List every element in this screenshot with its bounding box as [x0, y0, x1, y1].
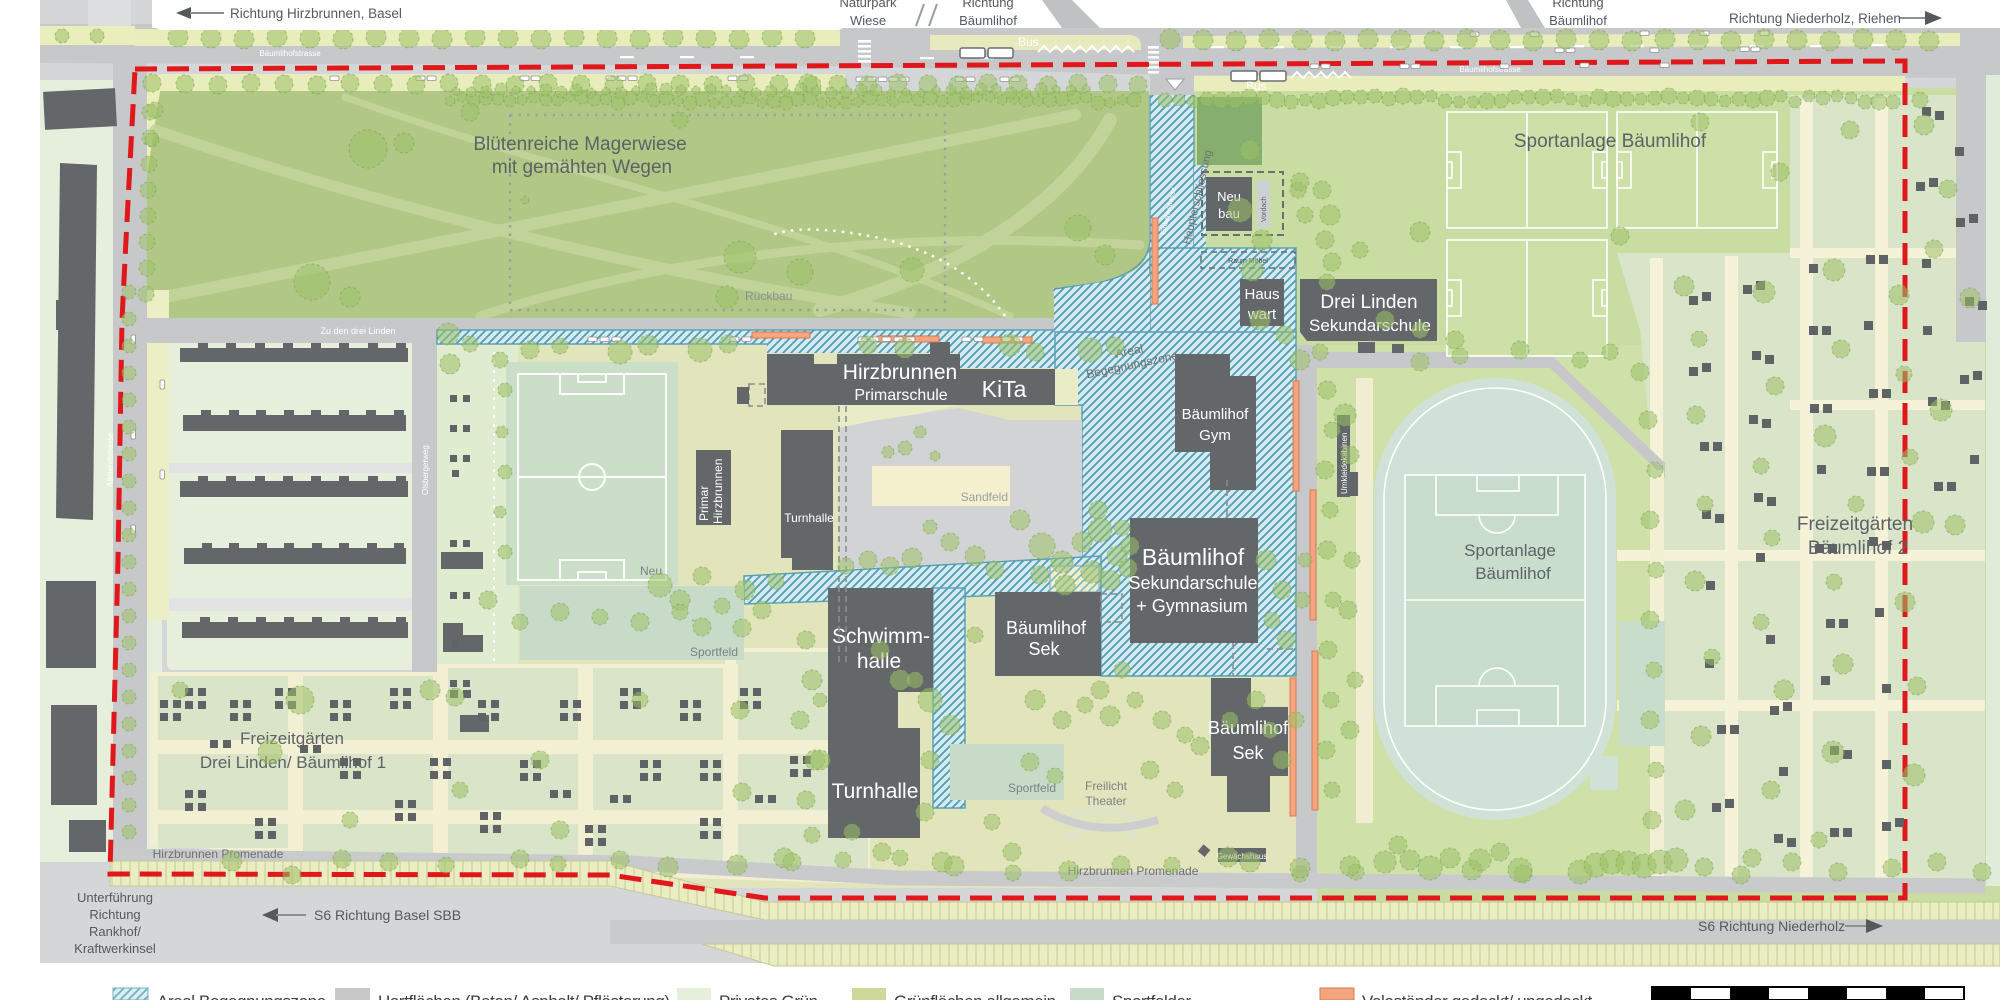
svg-text:Unterführung: Unterführung	[77, 890, 153, 905]
svg-text:+ Gymnasium: + Gymnasium	[1136, 596, 1248, 616]
svg-text:Allmendstrasse: Allmendstrasse	[106, 432, 115, 487]
svg-text:Blütenreiche Magerwiese: Blütenreiche Magerwiese	[473, 134, 686, 155]
svg-text:Privates Grün: Privates Grün	[719, 992, 818, 1000]
svg-text:Bäumlihof: Bäumlihof	[1549, 13, 1607, 28]
svg-text:Sek: Sek	[1028, 639, 1060, 659]
svg-text:Richtung: Richtung	[962, 0, 1013, 10]
svg-text:Hartflächen (Beton/ Asphalt/ P: Hartflächen (Beton/ Asphalt/ Pflästerung…	[378, 992, 670, 1000]
svg-text:Richtung: Richtung	[89, 907, 140, 922]
svg-text:Sekundarschule: Sekundarschule	[1128, 573, 1257, 593]
svg-text:Gym: Gym	[1199, 427, 1231, 444]
svg-text:Sandfeld: Sandfeld	[961, 490, 1008, 504]
svg-text:Olsbergerweg: Olsbergerweg	[421, 445, 430, 495]
svg-text:Hirzbrunnen Promenade: Hirzbrunnen Promenade	[153, 847, 284, 861]
svg-text:Sportfeld: Sportfeld	[1008, 781, 1056, 795]
svg-text:Sek: Sek	[1232, 743, 1264, 763]
svg-text:Sportanlage: Sportanlage	[1464, 541, 1556, 560]
svg-text:Bäumlihof 2: Bäumlihof 2	[1808, 538, 1908, 559]
svg-text:Vordach: Vordach	[1261, 196, 1268, 222]
svg-text:Freizeitgärten: Freizeitgärten	[240, 729, 344, 748]
svg-text:Theater: Theater	[1085, 794, 1126, 808]
svg-text:Hirzbrunnen: Hirzbrunnen	[711, 459, 725, 524]
svg-text:Rankhof/: Rankhof/	[89, 924, 141, 939]
svg-text:Areal Begegnungszone: Areal Begegnungszone	[157, 992, 326, 1000]
svg-text:Drei Linden/ Bäumlihof 1: Drei Linden/ Bäumlihof 1	[200, 753, 386, 772]
svg-text:Richtung Niederholz, Riehen: Richtung Niederholz, Riehen	[1729, 11, 1901, 26]
svg-text:Turnhalle: Turnhalle	[784, 511, 834, 525]
svg-text:Veloständer gedeckt/ ungedeckt: Veloständer gedeckt/ ungedeckt	[1362, 992, 1593, 1000]
svg-text:S6 Richtung Niederholz: S6 Richtung Niederholz	[1698, 918, 1845, 934]
svg-text:Drei Linden: Drei Linden	[1320, 292, 1417, 313]
svg-text:Haus: Haus	[1244, 286, 1279, 303]
svg-text:Sportfeld: Sportfeld	[690, 645, 738, 659]
svg-text:Wiese: Wiese	[850, 13, 886, 28]
svg-text:Bäumlihof: Bäumlihof	[1475, 564, 1551, 583]
svg-text:Naturpark: Naturpark	[839, 0, 897, 10]
svg-text:Bus: Bus	[1018, 35, 1039, 49]
svg-text:Bäumlihof: Bäumlihof	[1142, 544, 1245, 570]
svg-text:Bäumlihofstrasse: Bäumlihofstrasse	[259, 49, 321, 58]
svg-text:Kraftwerkinsel: Kraftwerkinsel	[74, 941, 156, 956]
svg-text:Turnhalle: Turnhalle	[832, 780, 919, 803]
svg-text:Bäumlihofstrasse: Bäumlihofstrasse	[1459, 65, 1521, 74]
svg-text:Freilicht: Freilicht	[1085, 779, 1128, 793]
svg-text:Bäumlihof: Bäumlihof	[1182, 406, 1250, 423]
svg-text:Rückbau: Rückbau	[745, 289, 792, 303]
svg-text:Richtung: Richtung	[1552, 0, 1603, 10]
svg-text:Bäumlihof: Bäumlihof	[959, 13, 1017, 28]
svg-text:Sportfelder: Sportfelder	[1112, 992, 1191, 1000]
svg-text:Zu den drei Linden: Zu den drei Linden	[320, 326, 395, 336]
svg-text:S6 Richtung Basel SBB: S6 Richtung Basel SBB	[314, 907, 461, 923]
svg-text:Grünflächen allgemein: Grünflächen allgemein	[894, 992, 1056, 1000]
svg-text:Freizeitgärten: Freizeitgärten	[1797, 514, 1913, 535]
svg-text:Primar: Primar	[697, 486, 711, 521]
svg-text:KiTa: KiTa	[982, 376, 1027, 402]
svg-text:Richtung Hirzbrunnen, Basel: Richtung Hirzbrunnen, Basel	[230, 6, 402, 21]
svg-text:Primarschule: Primarschule	[854, 387, 947, 404]
svg-text:mit gemähten Wegen: mit gemähten Wegen	[492, 157, 672, 178]
svg-text:Bäumlihof: Bäumlihof	[1006, 618, 1087, 638]
svg-text:Sportanlage Bäumlihof: Sportanlage Bäumlihof	[1514, 131, 1707, 152]
svg-text:Hirzbrunnen: Hirzbrunnen	[843, 361, 957, 384]
